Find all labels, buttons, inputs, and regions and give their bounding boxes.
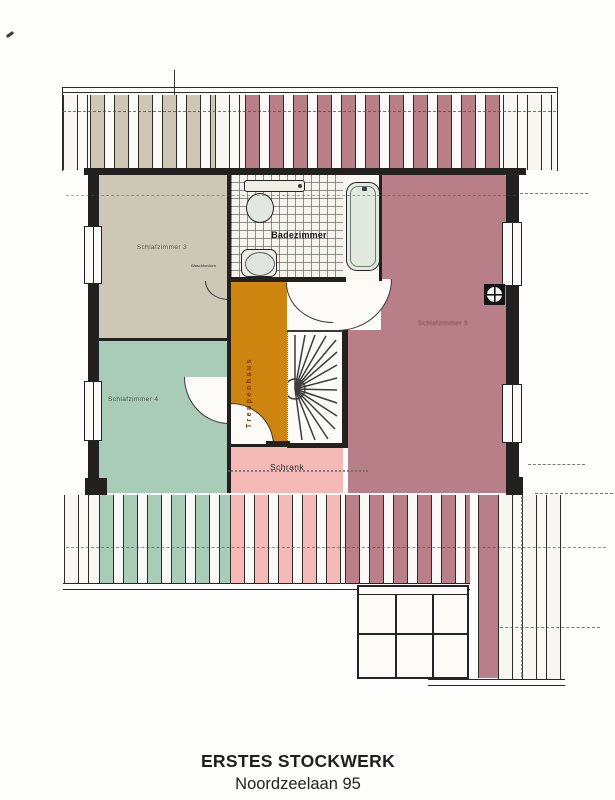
label-washbasin-note: Waschbecken (191, 263, 221, 268)
top-roof-band-topline (62, 92, 556, 93)
roof-dashed-line (63, 111, 556, 112)
cistern-knob-icon (298, 184, 302, 188)
window-left-lower (84, 381, 102, 441)
wall-top (84, 168, 526, 175)
ext-baseline (428, 679, 565, 686)
floor-strips-white-left (64, 495, 99, 583)
spiral-stair-treads (288, 332, 343, 443)
plan-title: ERSTES STOCKWERK (0, 751, 596, 772)
window-mullion (512, 385, 513, 442)
floor-strips-green (99, 495, 230, 583)
bathtub-inner-icon (350, 186, 376, 267)
label-treppenhaus: Treppenhaus (246, 318, 253, 428)
roof-strips-beige (90, 95, 215, 170)
kneewall-dashed-lower (66, 547, 606, 548)
scan-speck (6, 31, 14, 38)
dormer-rail (359, 587, 467, 595)
window-mullion (93, 227, 94, 283)
window-mullion (512, 223, 513, 285)
label-schlafzimmer3: Schlafzimmer 3 (112, 244, 212, 251)
wall-right (506, 171, 519, 495)
wall-bedroom4-top (99, 338, 230, 341)
room-schlafzimmer5-extension (348, 330, 381, 493)
schrank-dotted-line (228, 470, 368, 472)
window-left-upper (84, 226, 102, 284)
floor-strips-pink (230, 495, 345, 583)
bathtub-drain-icon (362, 187, 367, 191)
floor-strips-mauve (345, 495, 470, 583)
label-schlafzimmer5: Schlafzimmer 5 (398, 320, 488, 327)
washbasin-bowl-icon (245, 252, 275, 276)
dormer-divider-v1 (395, 594, 397, 677)
dormer-grid-window (357, 585, 469, 679)
roof-strips-white-right (503, 95, 555, 170)
window-right-lower (502, 384, 522, 443)
toilet-icon (246, 193, 274, 223)
roof-strips-white-left (63, 95, 90, 170)
label-schlafzimmer4: Schlafzimmer 4 (108, 396, 218, 403)
spiral-stair (287, 332, 342, 443)
kneewall-dashed-ext (500, 627, 600, 628)
roof-strips-mauve (245, 95, 503, 170)
kneewall-dashed-right-low (535, 493, 613, 494)
wall-bath-bottom (227, 277, 346, 282)
wall-left (88, 171, 99, 492)
ext-dotted-column (521, 497, 523, 677)
wall-bottom-chunk-left (85, 478, 107, 495)
ext-white-strips (498, 495, 562, 680)
chimney-vent-icon (484, 284, 505, 305)
dormer-divider-v2 (432, 594, 434, 677)
roof-strips-white-mid (215, 95, 245, 170)
label-badezimmer: Badezimmer (253, 230, 345, 240)
ext-mauve-strip (478, 495, 500, 678)
wall-schrank-top-chunk (266, 441, 290, 447)
room-schlafzimmer5 (381, 175, 506, 493)
wall-stair-top (287, 330, 343, 332)
window-right-upper (502, 222, 522, 286)
kneewall-dashed-upper (66, 195, 516, 196)
room-schlafzimmer3 (99, 175, 228, 339)
window-mullion (93, 382, 94, 440)
vent-cross-icon (487, 287, 502, 302)
plan-address: Noordzeelaan 95 (0, 775, 596, 794)
toilet-cistern-icon (244, 180, 305, 192)
floor-plan-sheet: Schlafzimmer 3 Schlafzimmer 4 Schlafzimm… (0, 0, 615, 800)
wall-stair-right (342, 330, 348, 445)
washbasin-icon (241, 249, 277, 277)
kneewall-dashed-right-mid (528, 464, 585, 465)
dormer-divider-h (359, 633, 467, 635)
kneewall-dashed-upper-right (520, 193, 588, 194)
